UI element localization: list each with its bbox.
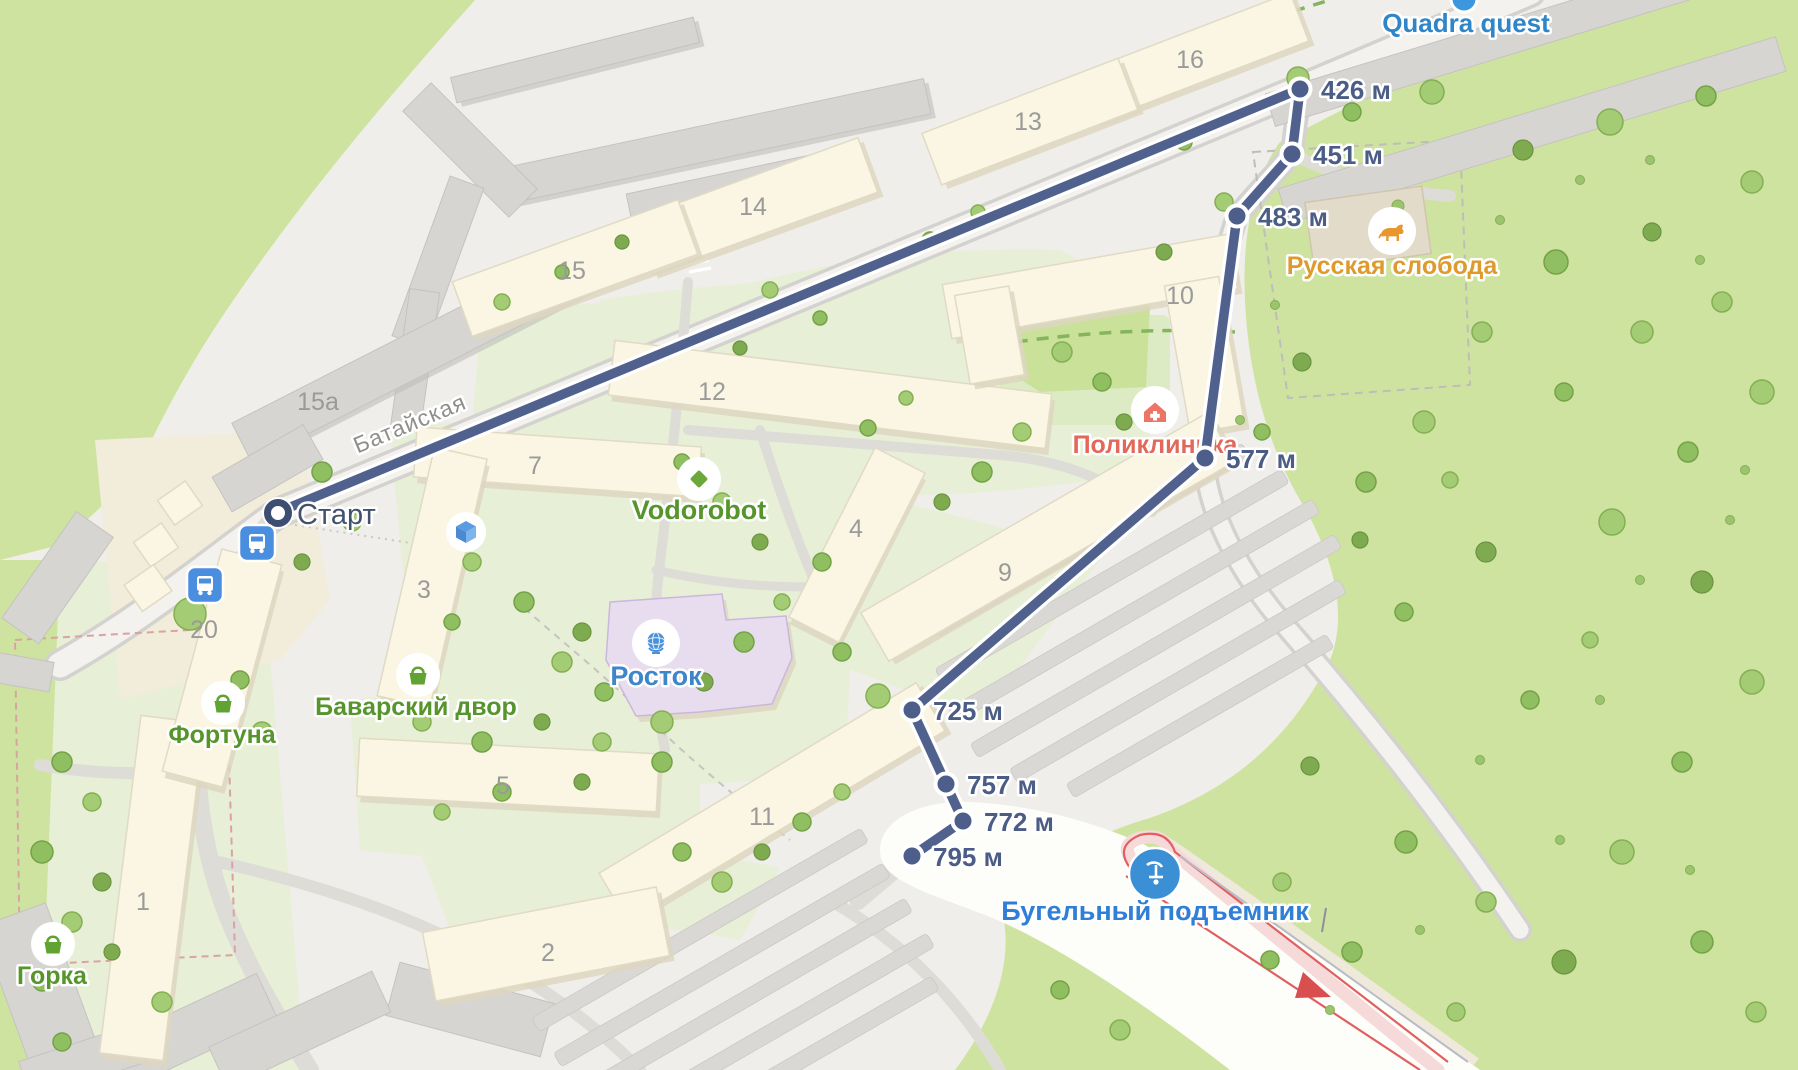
- building-label: 2: [541, 939, 555, 967]
- route-waypoint[interactable]: 577 м: [1195, 444, 1296, 474]
- poi-label: Бугельный подъемник: [1001, 896, 1309, 926]
- bus-stop[interactable]: [187, 567, 223, 603]
- building-label: 7: [528, 452, 542, 480]
- building-label: 12: [698, 378, 726, 406]
- waypoint-distance: 426 м: [1321, 75, 1391, 105]
- building-label: 1: [136, 888, 150, 916]
- poi-label: Русская слобода: [1287, 252, 1499, 280]
- waypoint-distance: 483 м: [1258, 202, 1328, 232]
- waypoint-dot: [953, 811, 974, 832]
- waypoint-dot: [1282, 144, 1303, 165]
- poi-label: Фортуна: [168, 721, 276, 749]
- building-label: 5: [496, 772, 510, 800]
- parcel-locker[interactable]: [446, 512, 486, 552]
- poi-label: Баварский двор: [315, 693, 517, 721]
- start-marker[interactable]: Старт: [262, 497, 376, 531]
- waypoint-dot: [936, 774, 957, 795]
- bus-stop[interactable]: [239, 525, 275, 561]
- route-waypoint[interactable]: 426 м: [1290, 75, 1391, 105]
- building-label: 10: [1166, 282, 1194, 310]
- building-label: 4: [849, 515, 863, 543]
- building-label: 11: [749, 803, 775, 831]
- building-label: 20: [190, 616, 218, 644]
- route-waypoint[interactable]: 772 м: [953, 807, 1054, 837]
- route-waypoint[interactable]: 451 м: [1282, 140, 1383, 170]
- waypoint-distance: 795 м: [933, 842, 1003, 872]
- waypoint-dot: [1227, 206, 1248, 227]
- building-label: 16: [1176, 46, 1204, 74]
- poi-label: Росток: [610, 661, 702, 691]
- route-waypoint[interactable]: 757 м: [936, 770, 1037, 800]
- building-label: 3: [417, 576, 431, 604]
- poi-label: Quadra quest: [1382, 8, 1550, 38]
- waypoint-distance: 577 м: [1226, 444, 1296, 474]
- building-label: 9: [998, 559, 1012, 587]
- start-ring: [268, 503, 289, 524]
- poi-label: Vodorobot: [632, 495, 766, 525]
- route-waypoint[interactable]: 483 м: [1227, 202, 1328, 232]
- waypoint-distance: 725 м: [933, 696, 1003, 726]
- building-label: 14: [739, 193, 767, 221]
- building-label: 13: [1014, 108, 1042, 136]
- building-label: 15: [558, 257, 586, 285]
- waypoint-dot: [902, 846, 923, 867]
- start-label: Старт: [297, 499, 376, 531]
- globe-icon: [648, 633, 665, 654]
- building-label: 15a: [297, 388, 339, 416]
- route-waypoint[interactable]: 795 м: [902, 842, 1003, 872]
- route-waypoint[interactable]: 725 м: [902, 696, 1003, 726]
- waypoint-dot: [902, 700, 923, 721]
- map-screenshot: 1 2 3 4 5 7 9 10 11 12 13 14 15 15a 16 2…: [0, 0, 1798, 1070]
- map-canvas[interactable]: 1 2 3 4 5 7 9 10 11 12 13 14 15 15a 16 2…: [0, 0, 1798, 1070]
- waypoint-dot: [1195, 448, 1216, 469]
- waypoint-distance: 757 м: [967, 770, 1037, 800]
- waypoint-dot: [1290, 79, 1311, 100]
- waypoint-distance: 772 м: [984, 807, 1054, 837]
- poi-label: Горка: [17, 962, 88, 990]
- waypoint-distance: 451 м: [1313, 140, 1383, 170]
